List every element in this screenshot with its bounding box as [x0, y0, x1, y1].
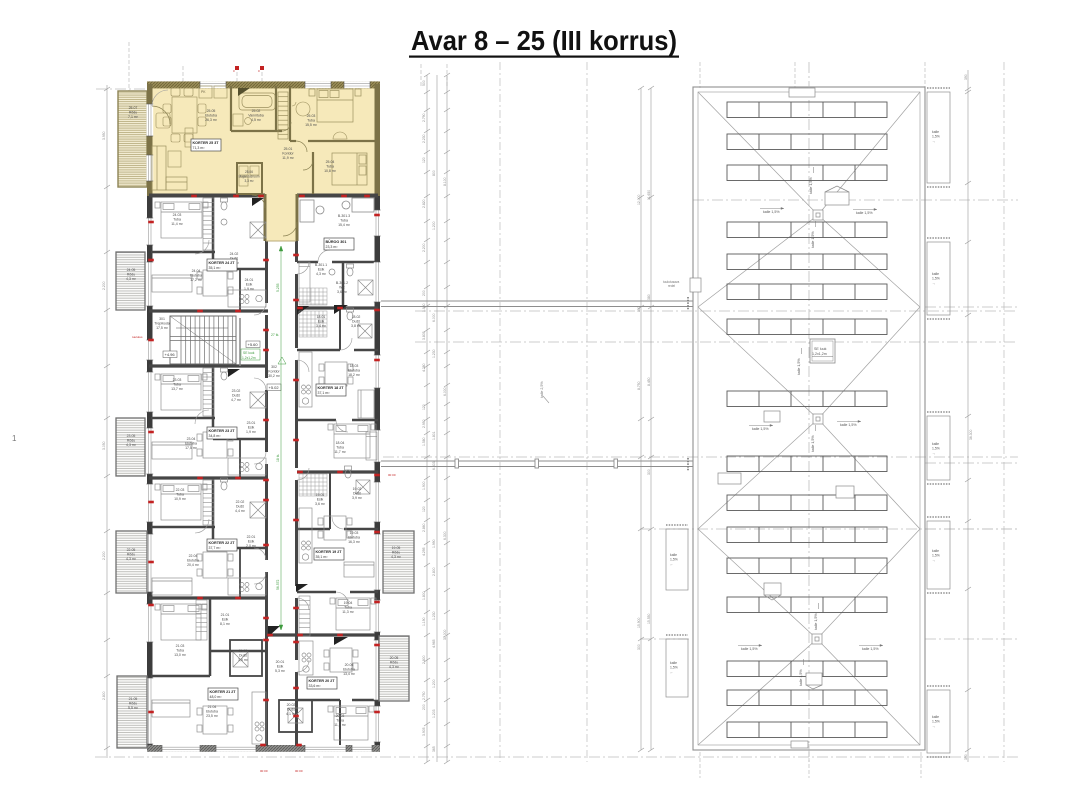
svg-text:800: 800: [432, 170, 436, 176]
svg-text:Esik: Esik: [317, 497, 324, 501]
svg-text:Koridor: Koridor: [268, 369, 280, 373]
svg-text:WC: WC: [339, 285, 345, 289]
svg-text:8.450: 8.450: [647, 377, 651, 386]
svg-text:2.820: 2.820: [422, 199, 426, 208]
svg-text:37,1 m²: 37,1 m²: [318, 391, 331, 395]
svg-text:Tuba: Tuba: [176, 648, 184, 652]
svg-text:13,4 m²: 13,4 m²: [343, 672, 356, 676]
svg-text:KORTER 21 2T: KORTER 21 2T: [210, 690, 237, 694]
svg-text:Rõdu: Rõdu: [127, 272, 135, 276]
svg-text:1.980: 1.980: [422, 303, 426, 312]
svg-text:4,3 m²: 4,3 m²: [126, 277, 137, 281]
svg-text:Vannituba: Vannituba: [248, 113, 264, 117]
svg-text:21.02: 21.02: [239, 649, 248, 653]
svg-text:22.01: 22.01: [247, 535, 256, 539]
svg-text:kalle 1,5%: kalle 1,5%: [799, 669, 803, 686]
svg-text:+5.02: +5.02: [269, 385, 280, 390]
svg-text:kalle: kalle: [932, 442, 939, 446]
svg-text:71,3 m²: 71,3 m²: [193, 146, 206, 150]
svg-text:kalle 1,5%: kalle 1,5%: [809, 177, 813, 194]
svg-text:11,3 m²: 11,3 m²: [342, 610, 354, 614]
svg-text:Dušš: Dušš: [352, 319, 360, 323]
svg-text:Esik: Esik: [222, 617, 229, 621]
svg-text:15,4 m²: 15,4 m²: [338, 223, 351, 227]
svg-text:1.200: 1.200: [432, 679, 436, 688]
svg-text:25.07: 25.07: [129, 106, 138, 110]
svg-text:3,3 m²: 3,3 m²: [244, 179, 253, 183]
svg-text:30,2 m²: 30,2 m²: [268, 374, 281, 378]
svg-text:B-301.1: B-301.1: [315, 263, 327, 267]
svg-text:23.03: 23.03: [173, 378, 182, 382]
svg-text:25.05: 25.05: [207, 109, 216, 113]
svg-text:5,5 m²: 5,5 m²: [128, 706, 139, 710]
svg-text:Tuba: Tuba: [307, 118, 315, 122]
svg-text:21.04: 21.04: [208, 705, 217, 709]
svg-text:Rõdu: Rõdu: [129, 110, 137, 114]
svg-text:22.03: 22.03: [176, 488, 185, 492]
svg-text:24.04: 24.04: [192, 269, 201, 273]
svg-text:Elutuba: Elutuba: [187, 558, 199, 562]
svg-text:24.01: 24.01: [245, 278, 254, 282]
svg-text:2.860: 2.860: [422, 523, 426, 532]
svg-text:4,3 m²: 4,3 m²: [126, 557, 137, 561]
svg-text:120: 120: [422, 157, 426, 163]
svg-text:4,3 m²: 4,3 m²: [389, 665, 400, 669]
svg-text:KORTER 19 2T: KORTER 19 2T: [316, 550, 343, 554]
svg-text:25.01: 25.01: [284, 147, 293, 151]
svg-text:18.02: 18.02: [352, 315, 361, 319]
svg-text:19.04: 19.04: [344, 601, 353, 605]
svg-text:Avar 8 – 25 (III korrus): Avar 8 – 25 (III korrus): [411, 25, 677, 56]
svg-text:3.805: 3.805: [422, 331, 426, 340]
svg-text:KORTER 18 2T: KORTER 18 2T: [318, 386, 345, 390]
svg-text:tuulutus: tuulutus: [132, 335, 143, 339]
svg-text:1,5%: 1,5%: [932, 554, 940, 558]
svg-text:11,7 m²: 11,7 m²: [334, 450, 346, 454]
svg-text:00 00: 00 00: [295, 769, 303, 773]
svg-text:4,5 m²: 4,5 m²: [251, 118, 262, 122]
svg-text:200: 200: [422, 290, 426, 296]
svg-text:Tuba: Tuba: [173, 217, 181, 221]
svg-text:3.950: 3.950: [102, 131, 106, 140]
svg-text:←: ←: [670, 563, 673, 567]
svg-text:kalle 1,5%: kalle 1,5%: [840, 423, 857, 427]
svg-text:1,5%: 1,5%: [932, 277, 940, 281]
svg-text:3,9 m²: 3,9 m²: [352, 496, 363, 500]
svg-text:6.000: 6.000: [443, 387, 447, 396]
svg-text:PK: PK: [201, 90, 206, 94]
svg-text:kalle 1,5%: kalle 1,5%: [741, 647, 758, 651]
svg-text:1,5%: 1,5%: [670, 666, 678, 670]
svg-text:36.300: 36.300: [969, 430, 973, 440]
svg-text:17,5 m²: 17,5 m²: [185, 446, 198, 450]
svg-text:10,8 m²: 10,8 m²: [324, 169, 337, 173]
svg-text:Elutuba: Elutuba: [343, 667, 355, 671]
svg-text:00 00: 00 00: [388, 473, 396, 477]
svg-text:24.03: 24.03: [173, 213, 182, 217]
svg-text:20.01: 20.01: [276, 660, 285, 664]
svg-text:15.900: 15.900: [637, 618, 641, 628]
svg-text:22.04: 22.04: [189, 554, 198, 558]
svg-text:Elutuba: Elutuba: [348, 368, 360, 372]
svg-text:→: →: [932, 140, 935, 144]
svg-text:12.000: 12.000: [637, 195, 641, 205]
svg-text:→: →: [932, 725, 935, 729]
svg-text:kalle: kalle: [670, 661, 677, 665]
svg-text:Esik: Esik: [246, 282, 253, 286]
svg-text:11,9 m²: 11,9 m²: [282, 156, 294, 160]
svg-text:→: →: [932, 452, 935, 456]
svg-text:35,1 m²: 35,1 m²: [316, 555, 329, 559]
svg-text:1,5%: 1,5%: [932, 135, 940, 139]
svg-text:302: 302: [271, 365, 277, 369]
svg-text:20.04: 20.04: [345, 663, 354, 667]
svg-text:18,2 m²: 18,2 m²: [348, 373, 361, 377]
svg-text:4.295: 4.295: [422, 547, 426, 556]
svg-text:Dušš: Dušš: [353, 491, 361, 495]
svg-text:11,4 m²: 11,4 m²: [171, 222, 183, 226]
svg-text:15,5 m²: 15,5 m²: [305, 123, 318, 127]
svg-text:380: 380: [647, 294, 651, 300]
svg-text:15.550: 15.550: [647, 614, 651, 624]
svg-text:Koridor: Koridor: [282, 151, 294, 155]
svg-text:kalle 1,5%: kalle 1,5%: [763, 210, 780, 214]
svg-text:365: 365: [432, 746, 436, 752]
svg-text:20,4 m²: 20,4 m²: [187, 563, 200, 567]
svg-text:Elutuba: Elutuba: [205, 113, 217, 117]
svg-text:37.000: 37.000: [443, 630, 447, 640]
svg-text:Rõdu: Rõdu: [127, 552, 135, 556]
svg-text:Elutuba: Elutuba: [190, 273, 202, 277]
svg-text:33,6 m²: 33,6 m²: [309, 684, 322, 688]
svg-text:25.03: 25.03: [307, 114, 316, 118]
svg-text:25.04: 25.04: [326, 160, 335, 164]
svg-text:1.990: 1.990: [432, 539, 436, 548]
svg-text:18.03: 18.03: [350, 364, 359, 368]
svg-text:2.200: 2.200: [102, 551, 106, 560]
svg-text:8.750: 8.750: [637, 381, 641, 390]
svg-text:56.572: 56.572: [276, 580, 280, 590]
svg-text:4,7 m²: 4,7 m²: [231, 398, 242, 402]
svg-text:Esik: Esik: [248, 425, 255, 429]
svg-text:34,8 m²: 34,8 m²: [209, 434, 222, 438]
svg-text:kalle: kalle: [932, 272, 939, 276]
svg-text:Rõdu: Rõdu: [390, 660, 398, 664]
svg-text:KORTER 25 3T: KORTER 25 3T: [193, 141, 220, 145]
svg-text:17,5 m²: 17,5 m²: [156, 326, 169, 330]
svg-text:kalle 1,5%: kalle 1,5%: [752, 427, 769, 431]
svg-text:→: →: [932, 282, 935, 286]
svg-text:B-301.3: B-301.3: [338, 214, 350, 218]
svg-text:1,5%: 1,5%: [932, 447, 940, 451]
svg-text:500: 500: [422, 80, 426, 86]
svg-text:19.03: 19.03: [350, 531, 359, 535]
svg-text:2.200: 2.200: [102, 281, 106, 290]
svg-text:Rõdu: Rõdu: [392, 550, 400, 554]
svg-text:KORTER 20 2T: KORTER 20 2T: [309, 679, 336, 683]
svg-text:200: 200: [422, 704, 426, 710]
svg-text:19.02: 19.02: [353, 487, 362, 491]
svg-text:390: 390: [964, 74, 968, 80]
svg-text:1,5%: 1,5%: [932, 720, 940, 724]
svg-text:KORTER 22 2T: KORTER 22 2T: [209, 541, 236, 545]
svg-text:3,4 m²: 3,4 m²: [316, 324, 327, 328]
svg-text:Tuba: Tuba: [176, 492, 184, 496]
svg-text:4.965: 4.965: [432, 639, 436, 648]
svg-text:11.650: 11.650: [647, 190, 651, 200]
svg-text:Dušš: Dušš: [232, 393, 240, 397]
svg-text:27 tk.: 27 tk.: [271, 333, 279, 337]
svg-text:KORTER 24 2T: KORTER 24 2T: [209, 261, 236, 265]
svg-text:20.02: 20.02: [287, 703, 296, 707]
svg-text:6.300: 6.300: [443, 531, 447, 540]
svg-text:←: ←: [670, 671, 673, 675]
svg-text:Esik: Esik: [318, 267, 325, 271]
svg-text:3.905: 3.905: [422, 727, 426, 736]
svg-text:2.950: 2.950: [422, 419, 426, 428]
svg-text:18 tk.: 18 tk.: [276, 454, 280, 462]
svg-text:1.230: 1.230: [432, 349, 436, 358]
svg-text:Dušš: Dušš: [239, 653, 247, 657]
svg-text:kalle 1,5%: kalle 1,5%: [862, 647, 879, 651]
svg-text:2.200: 2.200: [422, 243, 426, 252]
svg-text:16,3 m²: 16,3 m²: [348, 540, 361, 544]
svg-text:Tuba: Tuba: [173, 382, 181, 386]
svg-text:Elutuba: Elutuba: [206, 709, 218, 713]
svg-text:19.01: 19.01: [316, 493, 325, 497]
svg-text:24.05: 24.05: [127, 268, 136, 272]
svg-text:350: 350: [637, 306, 641, 312]
svg-text:1: 1: [12, 434, 17, 443]
svg-text:3,6 m²: 3,6 m²: [315, 502, 326, 506]
svg-text:3,6 m²: 3,6 m²: [337, 290, 348, 294]
svg-text:1.230: 1.230: [432, 611, 436, 620]
svg-text:4.280: 4.280: [422, 363, 426, 372]
svg-text:+4.96: +4.96: [165, 352, 176, 357]
svg-text:1.900: 1.900: [422, 481, 426, 490]
svg-text:Esik: Esik: [277, 664, 284, 668]
svg-text:22.05: 22.05: [127, 548, 136, 552]
svg-text:18.04: 18.04: [336, 441, 345, 445]
svg-text:21.03: 21.03: [176, 644, 185, 648]
svg-text:7,1 m²: 7,1 m²: [128, 115, 139, 119]
svg-text:120: 120: [422, 404, 426, 410]
svg-text:2.750: 2.750: [422, 691, 426, 700]
svg-text:kalle: kalle: [932, 549, 939, 553]
svg-text:2,0 m²: 2,0 m²: [246, 544, 257, 548]
svg-text:Esik: Esik: [318, 319, 325, 323]
svg-text:kalle 1,5%: kalle 1,5%: [811, 231, 815, 248]
svg-text:SE luuk: SE luuk: [243, 351, 255, 355]
svg-text:kalle: kalle: [932, 715, 939, 719]
svg-text:SE luuk: SE luuk: [814, 347, 827, 351]
svg-text:redel: redel: [668, 284, 675, 288]
svg-text:23,3 m²: 23,3 m²: [326, 245, 339, 249]
svg-text:→: →: [932, 559, 935, 563]
svg-text:23,5 m²: 23,5 m²: [206, 714, 219, 718]
svg-text:4,3 m²: 4,3 m²: [391, 555, 402, 559]
svg-text:13,7 m²: 13,7 m²: [171, 387, 184, 391]
svg-text:301: 301: [159, 317, 165, 321]
svg-text:1,2x1,2m: 1,2x1,2m: [812, 352, 827, 356]
svg-text:BÜROO 301: BÜROO 301: [326, 239, 347, 244]
svg-text:Tuba: Tuba: [336, 718, 344, 722]
svg-text:Elutuba: Elutuba: [185, 441, 197, 445]
svg-text:11,7 m²: 11,7 m²: [334, 723, 346, 727]
svg-text:1.190: 1.190: [422, 617, 426, 626]
svg-text:3.050: 3.050: [102, 441, 106, 450]
svg-text:21.01: 21.01: [221, 613, 230, 617]
svg-text:Dušš: Dušš: [236, 504, 244, 508]
svg-text:1,2x1,2m: 1,2x1,2m: [242, 356, 256, 360]
svg-text:6.303: 6.303: [432, 461, 436, 470]
svg-text:25.02: 25.02: [252, 109, 261, 113]
svg-text:B-301.2: B-301.2: [336, 281, 348, 285]
svg-text:8,1 m²: 8,1 m²: [220, 622, 231, 626]
svg-text:kalle 1,5%: kalle 1,5%: [797, 358, 801, 375]
svg-text:2.800: 2.800: [422, 655, 426, 664]
svg-text:13,0 m²: 13,0 m²: [174, 653, 187, 657]
svg-text:1,5%: 1,5%: [670, 558, 678, 562]
svg-text:300: 300: [637, 644, 641, 650]
svg-text:4,4 m²: 4,4 m²: [235, 509, 246, 513]
svg-text:kalle 1,5%: kalle 1,5%: [814, 613, 818, 630]
svg-text:300: 300: [647, 469, 651, 475]
svg-text:kalle 1,5%: kalle 1,5%: [811, 435, 815, 452]
svg-text:37,7 m²: 37,7 m²: [209, 546, 222, 550]
svg-text:23.01: 23.01: [247, 421, 256, 425]
svg-text:Elutuba: Elutuba: [348, 535, 360, 539]
svg-text:48,0 m²: 48,0 m²: [210, 695, 223, 699]
svg-text:17,2 m²: 17,2 m²: [190, 278, 203, 282]
svg-text:18.01: 18.01: [317, 315, 326, 319]
svg-text:Dušš: Dušš: [287, 707, 295, 711]
svg-text:23.05: 23.05: [127, 434, 136, 438]
svg-text:kalle 2,5%: kalle 2,5%: [540, 381, 544, 398]
svg-text:3,8 m²: 3,8 m²: [351, 324, 362, 328]
svg-text:1.200: 1.200: [432, 221, 436, 230]
svg-text:2.800: 2.800: [102, 691, 106, 700]
svg-text:120: 120: [422, 506, 426, 512]
svg-text:5,3 m²: 5,3 m²: [275, 669, 286, 673]
svg-text:kalle: kalle: [670, 553, 677, 557]
svg-text:kalle: kalle: [932, 130, 939, 134]
svg-text:4,3 m²: 4,3 m²: [316, 272, 327, 276]
svg-text:Trepikoda: Trepikoda: [154, 321, 169, 325]
svg-text:26,3 m²: 26,3 m²: [205, 118, 218, 122]
svg-text:5.255: 5.255: [276, 283, 280, 292]
svg-text:2.800: 2.800: [432, 567, 436, 576]
svg-text:1,9 m²: 1,9 m²: [244, 287, 255, 291]
svg-text:1.801: 1.801: [432, 431, 436, 440]
svg-text:Majandusruum: Majandusruum: [238, 174, 259, 178]
svg-text:21.05: 21.05: [129, 697, 138, 701]
svg-text:23.02: 23.02: [232, 389, 241, 393]
svg-text:Rõdu: Rõdu: [127, 438, 135, 442]
svg-text:24.02: 24.02: [230, 252, 239, 256]
svg-text:1.800: 1.800: [422, 591, 426, 600]
svg-text:Tuba: Tuba: [336, 445, 344, 449]
svg-text:25.06: 25.06: [245, 170, 253, 174]
svg-text:6.000: 6.000: [432, 313, 436, 322]
svg-text:390: 390: [964, 754, 968, 760]
svg-text:kalle 1,5%: kalle 1,5%: [856, 211, 873, 215]
svg-text:Tuba: Tuba: [326, 164, 334, 168]
svg-text:Tuba: Tuba: [344, 605, 352, 609]
svg-text:22.02: 22.02: [236, 500, 245, 504]
svg-text:10,9 m²: 10,9 m²: [174, 497, 187, 501]
svg-text:20.03: 20.03: [336, 714, 345, 718]
svg-text:23.04: 23.04: [187, 437, 196, 441]
svg-text:1.580: 1.580: [422, 437, 426, 446]
svg-text:+5.60: +5.60: [248, 342, 259, 347]
svg-text:8.100: 8.100: [443, 177, 447, 186]
svg-text:00 00: 00 00: [260, 769, 268, 773]
svg-text:4,3 m²: 4,3 m²: [126, 443, 137, 447]
svg-text:19.05: 19.05: [392, 546, 401, 550]
svg-text:Tuba: Tuba: [340, 218, 348, 222]
svg-text:1,9 m²: 1,9 m²: [246, 430, 257, 434]
svg-text:35,1 m²: 35,1 m²: [209, 266, 222, 270]
svg-text:1.203: 1.203: [432, 709, 436, 718]
svg-text:3,6 m²: 3,6 m²: [238, 658, 249, 662]
svg-text:2.230: 2.230: [422, 134, 426, 143]
svg-text:20.05: 20.05: [390, 656, 399, 660]
svg-text:2.790: 2.790: [422, 113, 426, 122]
svg-text:Rõdu: Rõdu: [129, 701, 137, 705]
svg-text:KORTER 23 2T: KORTER 23 2T: [209, 429, 236, 433]
svg-text:Esik: Esik: [248, 539, 255, 543]
